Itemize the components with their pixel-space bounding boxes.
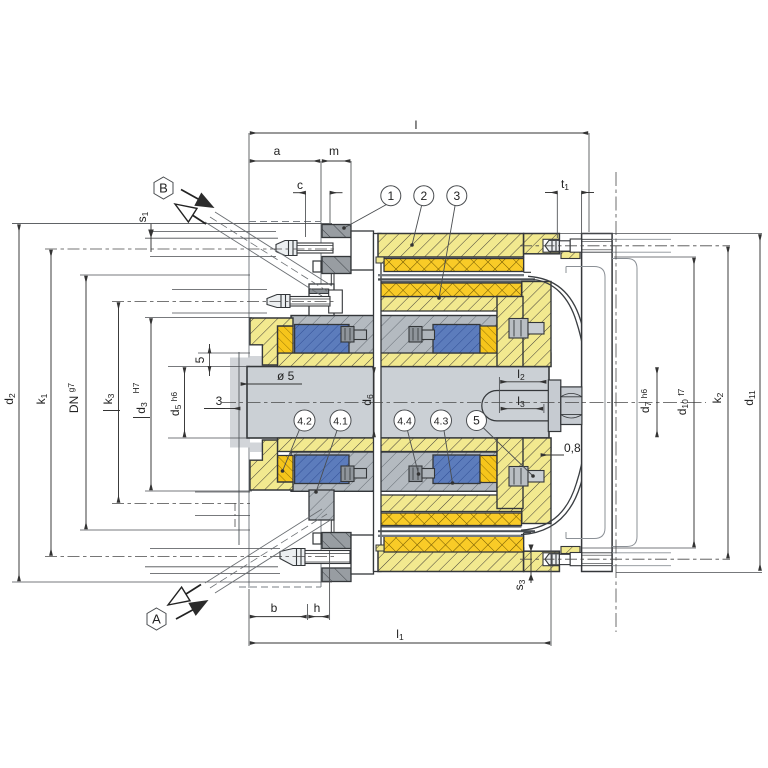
svg-text:a: a [274, 144, 281, 158]
svg-text:ø 5: ø 5 [277, 369, 295, 383]
svg-text:1: 1 [387, 189, 394, 203]
svg-text:B: B [159, 181, 168, 196]
svg-text:c: c [297, 178, 303, 192]
svg-text:4.3: 4.3 [434, 416, 449, 428]
svg-text:0,8: 0,8 [564, 441, 581, 455]
svg-text:m: m [329, 144, 339, 158]
svg-text:l: l [415, 118, 418, 132]
svg-text:b: b [271, 601, 278, 615]
svg-text:H7: H7 [131, 382, 141, 393]
svg-text:5: 5 [193, 356, 207, 363]
svg-text:4.4: 4.4 [397, 416, 412, 428]
svg-text:2: 2 [420, 189, 427, 203]
svg-text:h: h [314, 601, 321, 615]
svg-text:3: 3 [216, 394, 223, 408]
svg-text:5: 5 [473, 414, 480, 428]
svg-text:3: 3 [453, 189, 460, 203]
svg-text:4.2: 4.2 [297, 416, 312, 428]
svg-text:4.1: 4.1 [333, 416, 348, 428]
svg-text:A: A [152, 612, 161, 627]
